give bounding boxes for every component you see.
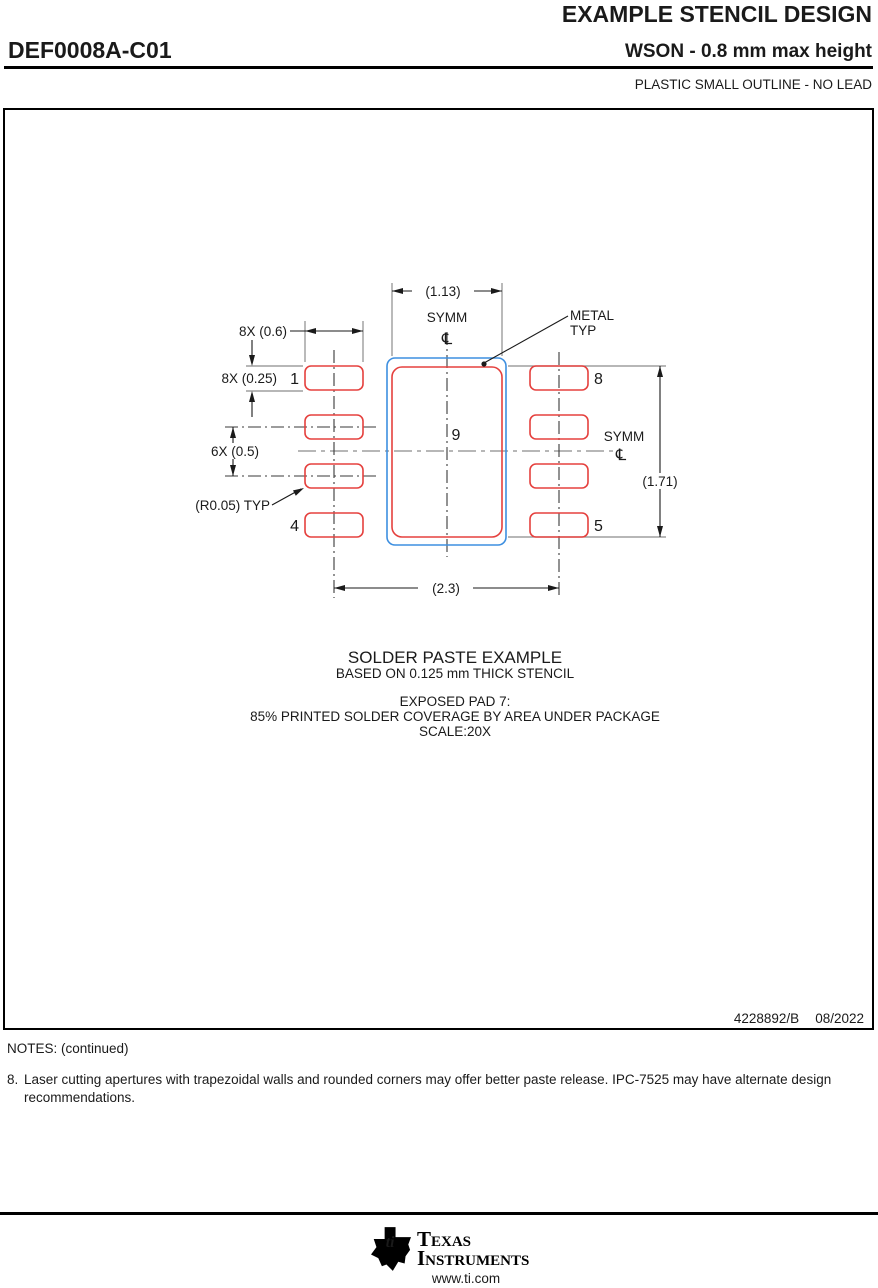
part-number: DEF0008A-C01 [8,37,172,64]
document-date: 08/2022 [815,1011,864,1026]
document-number-block: 4228892/B08/2022 [734,1011,864,1026]
package-subtitle: PLASTIC SMALL OUTLINE - NO LEAD [635,77,872,92]
caption-scale: SCALE:20X [55,724,855,739]
note-8-text: Laser cutting apertures with trapezoidal… [24,1071,844,1107]
ti-logo-icon: ti [371,1226,411,1272]
brand-instruments: Instruments [417,1248,529,1269]
notes-heading: NOTES: (continued) [7,1041,129,1056]
caption-stencil-note: BASED ON 0.125 mm THICK STENCIL [55,666,855,681]
caption-title: SOLDER PASTE EXAMPLE [55,648,855,668]
note-8-number: 8. [7,1071,24,1107]
header-divider [4,66,873,69]
caption-exposed-pad: EXPOSED PAD 7: [55,694,855,709]
document-number: 4228892/B [734,1011,799,1026]
drawing-border-box [3,108,874,1030]
footer-divider [0,1212,878,1215]
svg-text:ti: ti [386,1234,395,1251]
caption-coverage: 85% PRINTED SOLDER COVERAGE BY AREA UNDE… [55,709,855,724]
page-title: EXAMPLE STENCIL DESIGN [562,1,872,28]
note-8: 8. Laser cutting apertures with trapezoi… [7,1071,852,1107]
website-link[interactable]: www.ti.com [366,1271,566,1286]
package-title: WSON - 0.8 mm max height [625,41,872,63]
datasheet-page: EXAMPLE STENCIL DESIGN DEF0008A-C01 WSON… [0,0,878,1288]
